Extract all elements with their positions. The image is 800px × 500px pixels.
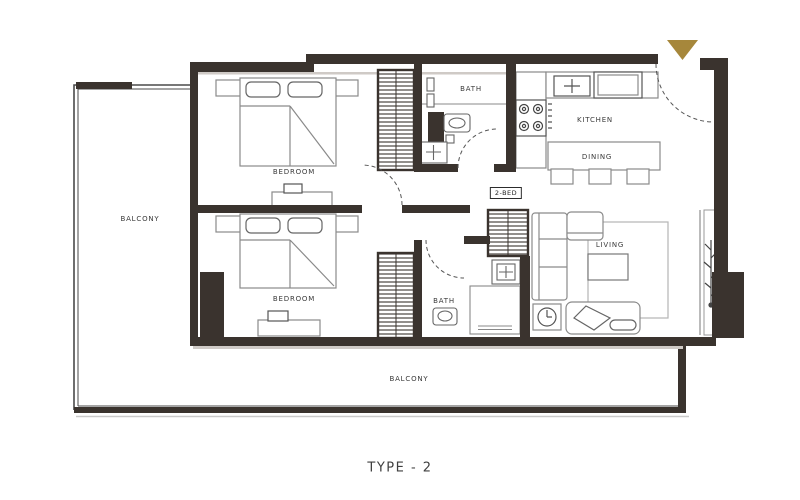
bedroom-bottom-furniture [216,214,358,336]
balcony-bottom-parapet [74,407,686,413]
stool-icon [551,169,573,184]
floorplan-page: BALCONY BALCONY BEDROOM BEDROOM BATH BAT… [0,0,800,500]
room-label-bedroom-bottom: BEDROOM [273,295,315,303]
entrance-door-arc [656,64,714,122]
room-label-bath-top: BATH [460,85,482,93]
towel-rail-icon [427,78,434,91]
toilet-bowl [438,311,452,321]
stool-icon [589,169,611,184]
unit-type-tag: 2-BED [490,187,522,199]
sofa-chaise-icon [567,212,603,240]
nightstand-icon [216,80,242,96]
coffee-table-icon [588,254,628,280]
nightstand-icon [216,216,242,232]
kitchen-fixtures [516,72,660,184]
rack-lines [548,104,552,128]
room-label-balcony-bottom: BALCONY [389,375,428,383]
shower-icon [470,286,520,334]
entrance-marker-icon [667,40,698,60]
chair-pillow [610,320,636,330]
towel-rail-icon [427,94,434,107]
bath-bottom-door-arc [426,240,464,278]
pillow-icon [288,218,322,233]
room-label-dining: DINING [582,153,612,161]
wall-shading [193,346,683,349]
cistern-block [428,112,444,142]
pillow-icon [246,218,280,233]
balcony-wall-segment [76,82,132,89]
stool-icon [627,169,649,184]
balcony-right-parapet [678,345,686,413]
pillow-icon [288,82,322,97]
room-label-bedroom-top: BEDROOM [273,168,315,176]
fridge-inner [598,75,638,95]
room-label-balcony-left: BALCONY [120,215,159,223]
room-label-kitchen: KITCHEN [577,116,613,124]
desk-monitor-icon [284,184,302,193]
floorplan-drawing [0,0,800,500]
sofa-icon [532,213,567,300]
desk-icon [258,320,320,336]
living-furniture [532,212,668,334]
room-label-living: LIVING [596,241,624,249]
toilet-bowl [449,118,465,128]
plan-caption: TYPE - 2 [367,461,432,476]
pillow-icon [246,82,280,97]
desk-monitor-icon [268,311,288,321]
bath-top-door-arc [458,129,497,168]
bedroom-top-furniture [216,78,358,208]
room-label-bath-bottom: BATH [433,297,455,305]
